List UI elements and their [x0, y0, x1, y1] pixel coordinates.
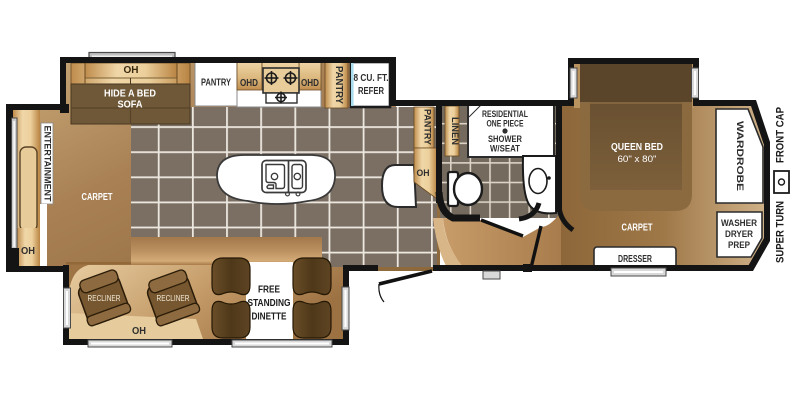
svg-text:60" x 80": 60" x 80" — [618, 154, 657, 165]
svg-text:OHD: OHD — [301, 77, 319, 89]
svg-text:REFER: REFER — [358, 86, 385, 97]
svg-text:STANDING: STANDING — [248, 298, 291, 309]
svg-text:CARPET: CARPET — [622, 222, 653, 234]
svg-text:ENTERTAINMENT: ENTERTAINMENT — [43, 126, 53, 202]
svg-text:OH: OH — [417, 168, 430, 179]
svg-text:8 CU. FT.: 8 CU. FT. — [354, 73, 389, 84]
svg-text:OH: OH — [21, 246, 35, 257]
svg-text:RECLINER: RECLINER — [88, 293, 121, 303]
svg-text:PANTRY: PANTRY — [201, 77, 231, 89]
svg-text:CARPET: CARPET — [82, 191, 113, 203]
svg-text:DRYER: DRYER — [725, 229, 753, 239]
svg-text:QUEEN BED: QUEEN BED — [611, 141, 663, 153]
svg-text:FRONT CAP: FRONT CAP — [775, 107, 787, 163]
svg-text:OH: OH — [124, 64, 139, 76]
svg-text:RECLINER: RECLINER — [157, 293, 190, 303]
svg-text:SUPER TURN: SUPER TURN — [775, 201, 787, 263]
svg-text:DRESSER: DRESSER — [618, 254, 653, 265]
svg-text:DINETTE: DINETTE — [252, 312, 287, 323]
svg-text:W/SEAT: W/SEAT — [490, 144, 520, 154]
svg-text:WASHER: WASHER — [721, 218, 757, 228]
svg-text:PREP: PREP — [728, 240, 750, 250]
svg-text:SOFA: SOFA — [118, 99, 143, 111]
svg-text:OHD: OHD — [240, 77, 258, 89]
svg-text:PANTRY: PANTRY — [333, 66, 344, 104]
svg-text:PANTRY: PANTRY — [422, 109, 433, 146]
svg-text:FREE: FREE — [258, 285, 280, 296]
svg-text:SHOWER: SHOWER — [488, 134, 522, 144]
svg-text:ONE PIECE: ONE PIECE — [487, 119, 524, 129]
svg-text:OH: OH — [132, 326, 146, 337]
svg-text:LINEN: LINEN — [450, 117, 460, 145]
svg-text:WARDROBE: WARDROBE — [735, 121, 745, 191]
svg-text:RESIDENTIAL: RESIDENTIAL — [482, 109, 528, 119]
